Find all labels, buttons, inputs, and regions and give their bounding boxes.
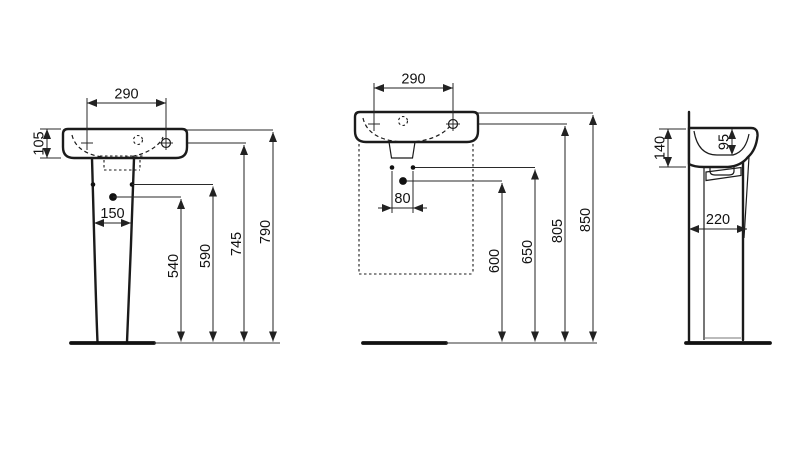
dim-label-590: 590 bbox=[198, 244, 214, 268]
dim-label-290: 290 bbox=[401, 72, 425, 88]
dim-height-650: 650 bbox=[520, 170, 536, 342]
dim-height-850: 850 bbox=[578, 115, 594, 342]
dim-label-290: 290 bbox=[114, 87, 138, 103]
basin-back-slant bbox=[744, 157, 749, 238]
dim-height-600: 600 bbox=[487, 183, 503, 342]
dim-depth-220: 220 bbox=[689, 212, 747, 229]
dim-label-150: 150 bbox=[100, 206, 124, 222]
dim-height-745: 745 bbox=[229, 145, 245, 342]
front-view-pedestal: 290 105 150 540 590 745 790 bbox=[32, 87, 281, 344]
dim-label-220: 220 bbox=[706, 212, 730, 228]
dim-label-140: 140 bbox=[653, 136, 669, 160]
dim-label-80: 80 bbox=[394, 191, 410, 207]
dim-label-540: 540 bbox=[166, 254, 182, 278]
dim-label-790: 790 bbox=[258, 220, 274, 244]
dim-label-600: 600 bbox=[487, 249, 503, 273]
drain-trap bbox=[389, 142, 415, 158]
front-view-wall-hung: 290 80 600 650 805 850 bbox=[355, 72, 597, 344]
dim-rim-to-underside-140: 140 bbox=[653, 129, 687, 167]
dim-height-805: 805 bbox=[550, 126, 566, 342]
fixing-hole-left bbox=[91, 182, 96, 187]
dim-basin-height-105: 105 bbox=[32, 129, 62, 158]
technical-drawing-page: 290 105 150 540 590 745 790 bbox=[0, 0, 800, 449]
dim-height-790: 790 bbox=[258, 132, 274, 342]
dim-tap-centres-290: 290 bbox=[374, 72, 453, 89]
basin-outline bbox=[355, 112, 478, 142]
fixing-hole-right bbox=[411, 165, 416, 170]
fixing-hole-left bbox=[390, 165, 395, 170]
bolt-hole bbox=[399, 177, 407, 185]
dim-label-805: 805 bbox=[550, 219, 566, 243]
dim-label-850: 850 bbox=[578, 208, 594, 232]
dim-label-745: 745 bbox=[229, 232, 245, 256]
side-view: 140 95 220 bbox=[653, 112, 771, 343]
dim-pedestal-width-150: 150 bbox=[94, 206, 131, 223]
dim-label-650: 650 bbox=[520, 240, 536, 264]
washbasin-dimension-diagram: 290 105 150 540 590 745 790 bbox=[0, 0, 800, 449]
dim-tap-centres-290: 290 bbox=[87, 87, 166, 104]
dim-label-105: 105 bbox=[32, 131, 48, 155]
dim-height-540: 540 bbox=[166, 199, 182, 342]
dim-height-590: 590 bbox=[198, 187, 214, 342]
dim-label-95: 95 bbox=[717, 134, 733, 150]
